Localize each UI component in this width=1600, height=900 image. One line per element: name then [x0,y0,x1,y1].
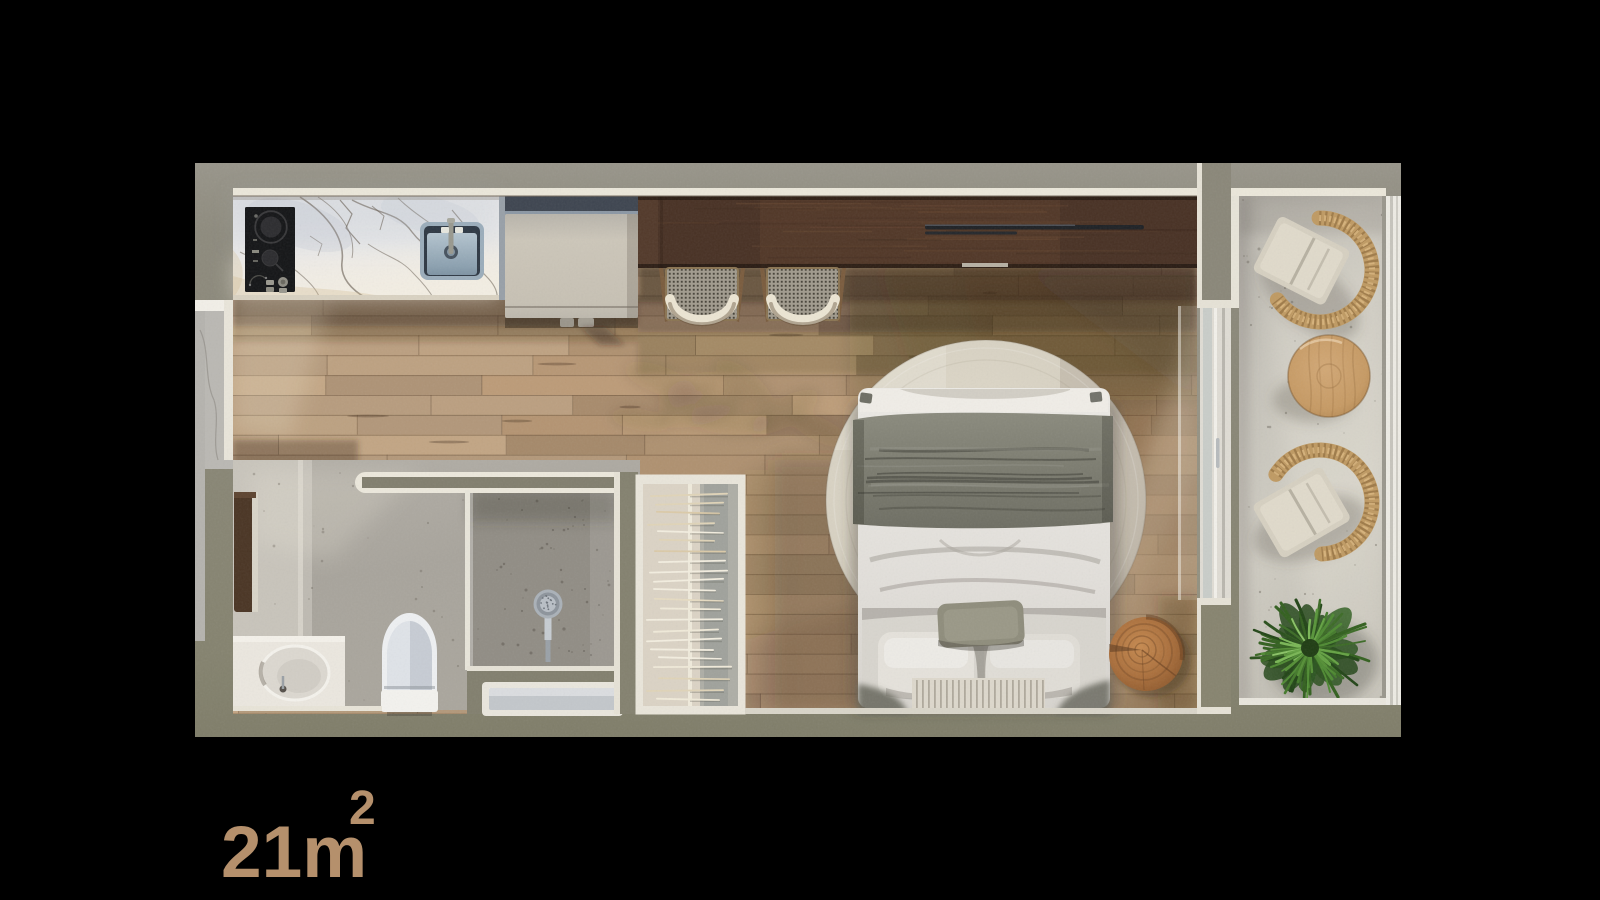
svg-text:21m: 21m [221,812,367,893]
svg-text:2: 2 [349,782,376,835]
